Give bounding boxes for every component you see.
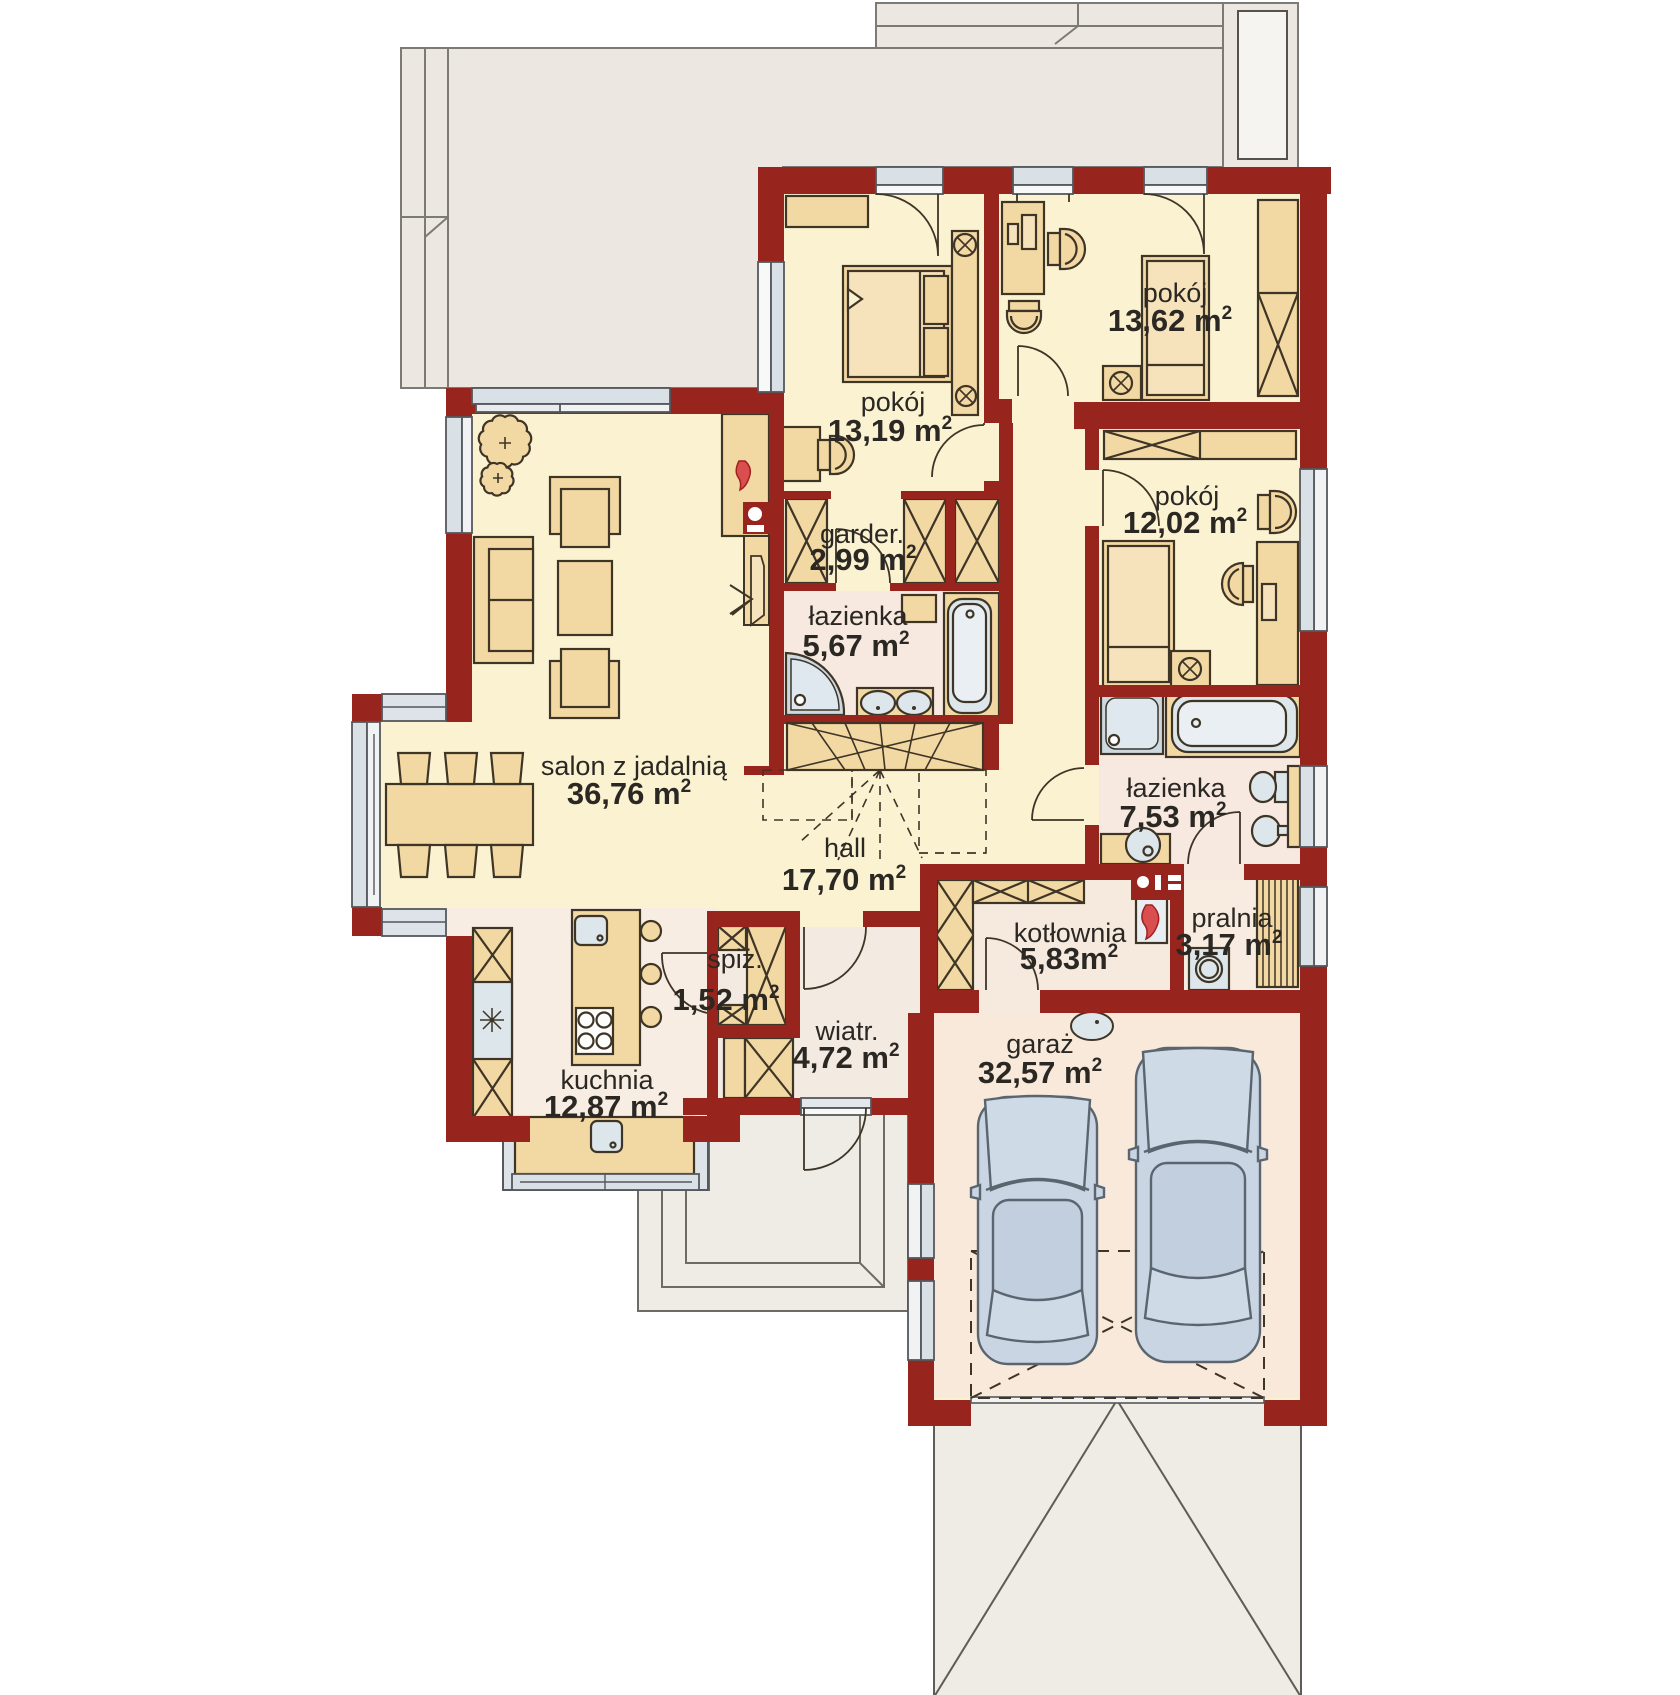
svg-text:5,83m2: 5,83m2	[1020, 941, 1118, 976]
svg-text:32,57 m2: 32,57 m2	[978, 1055, 1102, 1090]
svg-text:36,76 m2: 36,76 m2	[567, 776, 691, 811]
svg-text:5,67 m2: 5,67 m2	[802, 628, 909, 663]
svg-text:7,53 m2: 7,53 m2	[1119, 799, 1226, 834]
svg-text:1,52 m2: 1,52 m2	[672, 982, 779, 1017]
svg-text:3,17 m2: 3,17 m2	[1175, 927, 1282, 962]
svg-text:łazienka: łazienka	[808, 601, 908, 631]
svg-text:13,19 m2: 13,19 m2	[828, 413, 952, 448]
svg-text:hall: hall	[824, 833, 866, 863]
svg-text:13,62 m2: 13,62 m2	[1108, 303, 1232, 338]
svg-text:4,72 m2: 4,72 m2	[792, 1040, 899, 1075]
svg-text:12,87 m2: 12,87 m2	[544, 1089, 668, 1124]
svg-text:12,02 m2: 12,02 m2	[1123, 505, 1247, 540]
svg-text:spiż.: spiż.	[707, 944, 763, 974]
svg-text:2,99 m2: 2,99 m2	[809, 542, 916, 577]
svg-text:17,70 m2: 17,70 m2	[782, 862, 906, 897]
